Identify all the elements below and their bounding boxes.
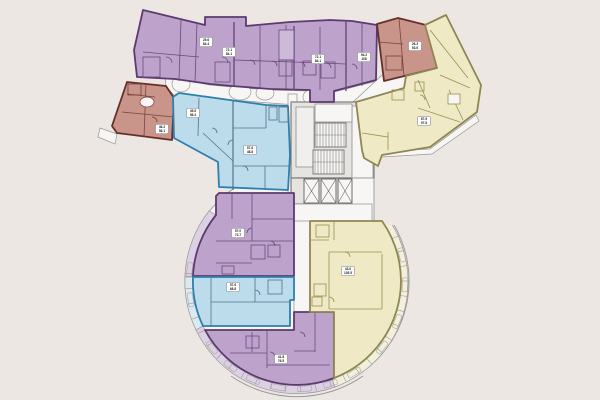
svg-text:56.1: 56.1 [159, 129, 165, 133]
svg-text:76.5: 76.5 [278, 359, 284, 363]
svg-text:72.7: 72.7 [235, 233, 241, 237]
svg-text:68.8: 68.8 [230, 287, 236, 291]
svg-text:48.8: 48.8 [247, 150, 253, 154]
svg-text:108: 108 [361, 57, 367, 61]
svg-text:84.1: 84.1 [315, 59, 321, 63]
svg-text:97.8: 97.8 [421, 121, 427, 125]
svg-text:56.4: 56.4 [190, 113, 196, 117]
svg-text:53.6: 53.6 [412, 46, 418, 50]
svg-text:84.4: 84.4 [203, 42, 209, 46]
svg-text:84.1: 84.1 [226, 52, 232, 56]
svg-text:105.5: 105.5 [344, 271, 352, 275]
